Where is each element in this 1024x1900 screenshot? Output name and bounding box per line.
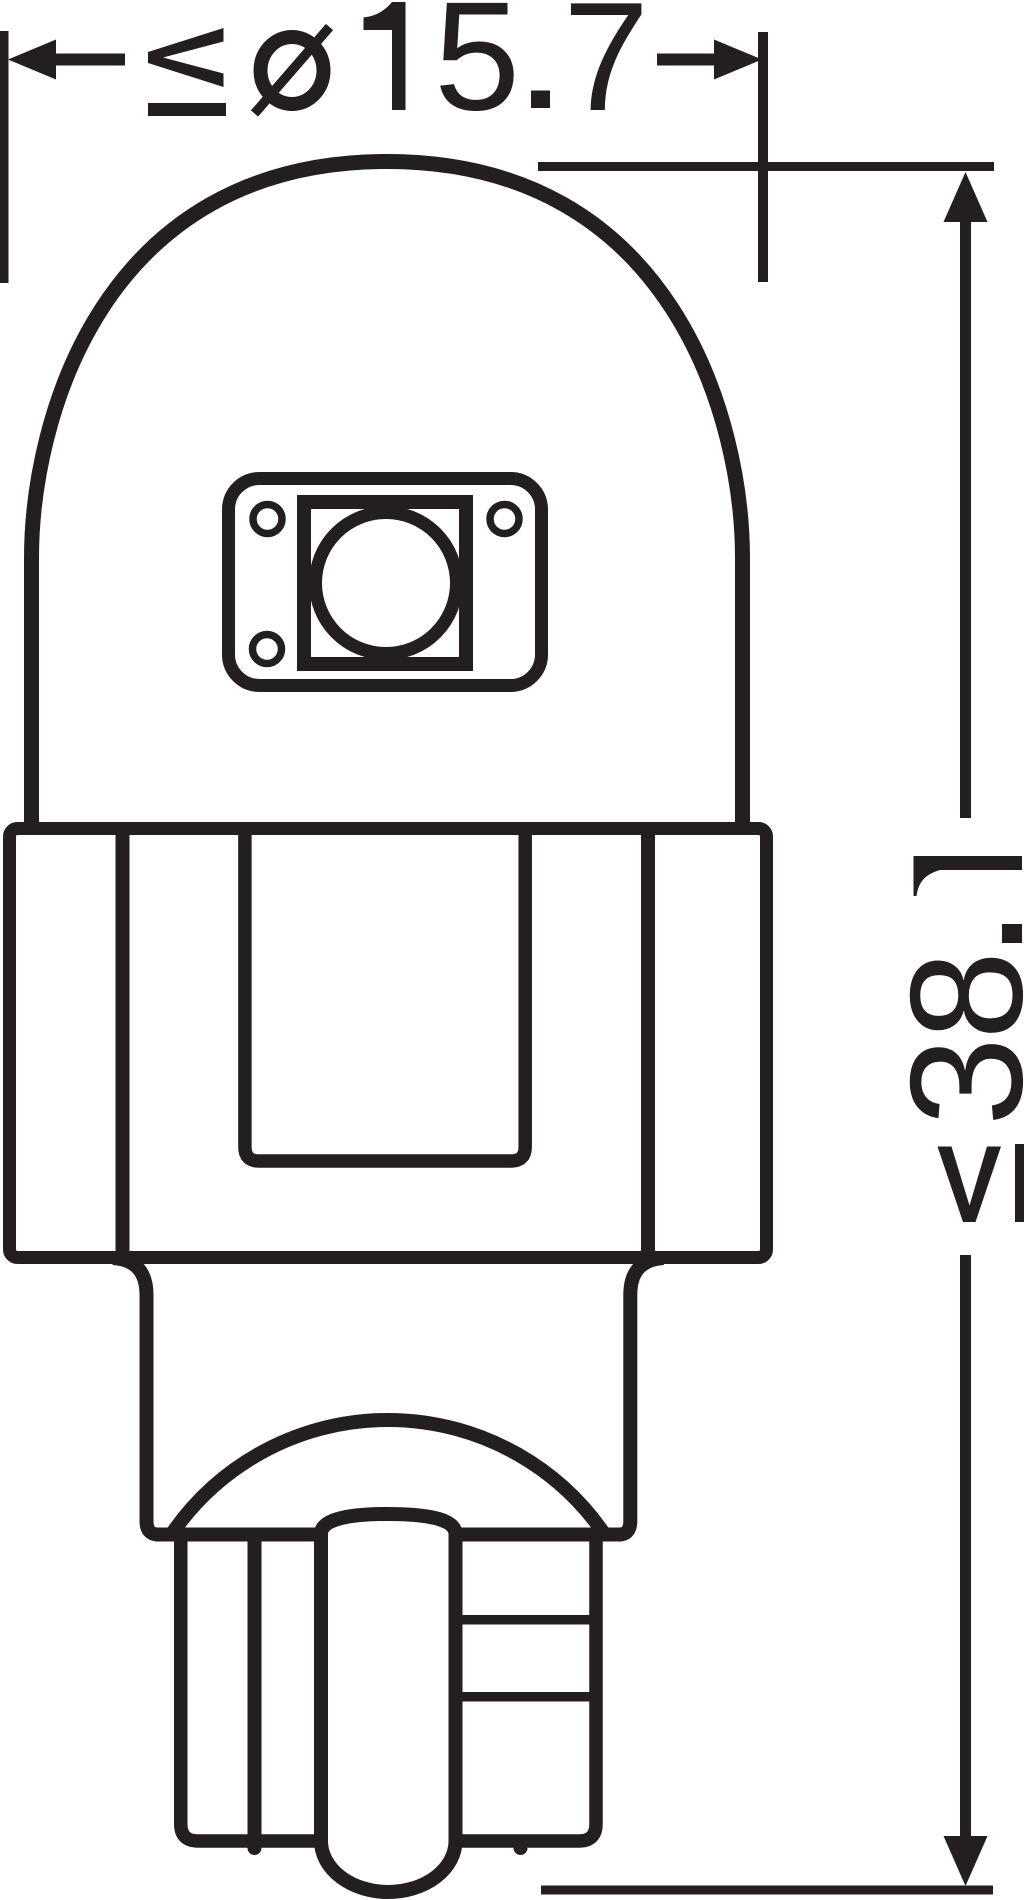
svg-text:3: 3	[877, 1037, 1024, 1126]
svg-text:5: 5	[434, 0, 520, 143]
svg-text:8: 8	[877, 951, 1024, 1040]
svg-text:7: 7	[563, 0, 649, 143]
